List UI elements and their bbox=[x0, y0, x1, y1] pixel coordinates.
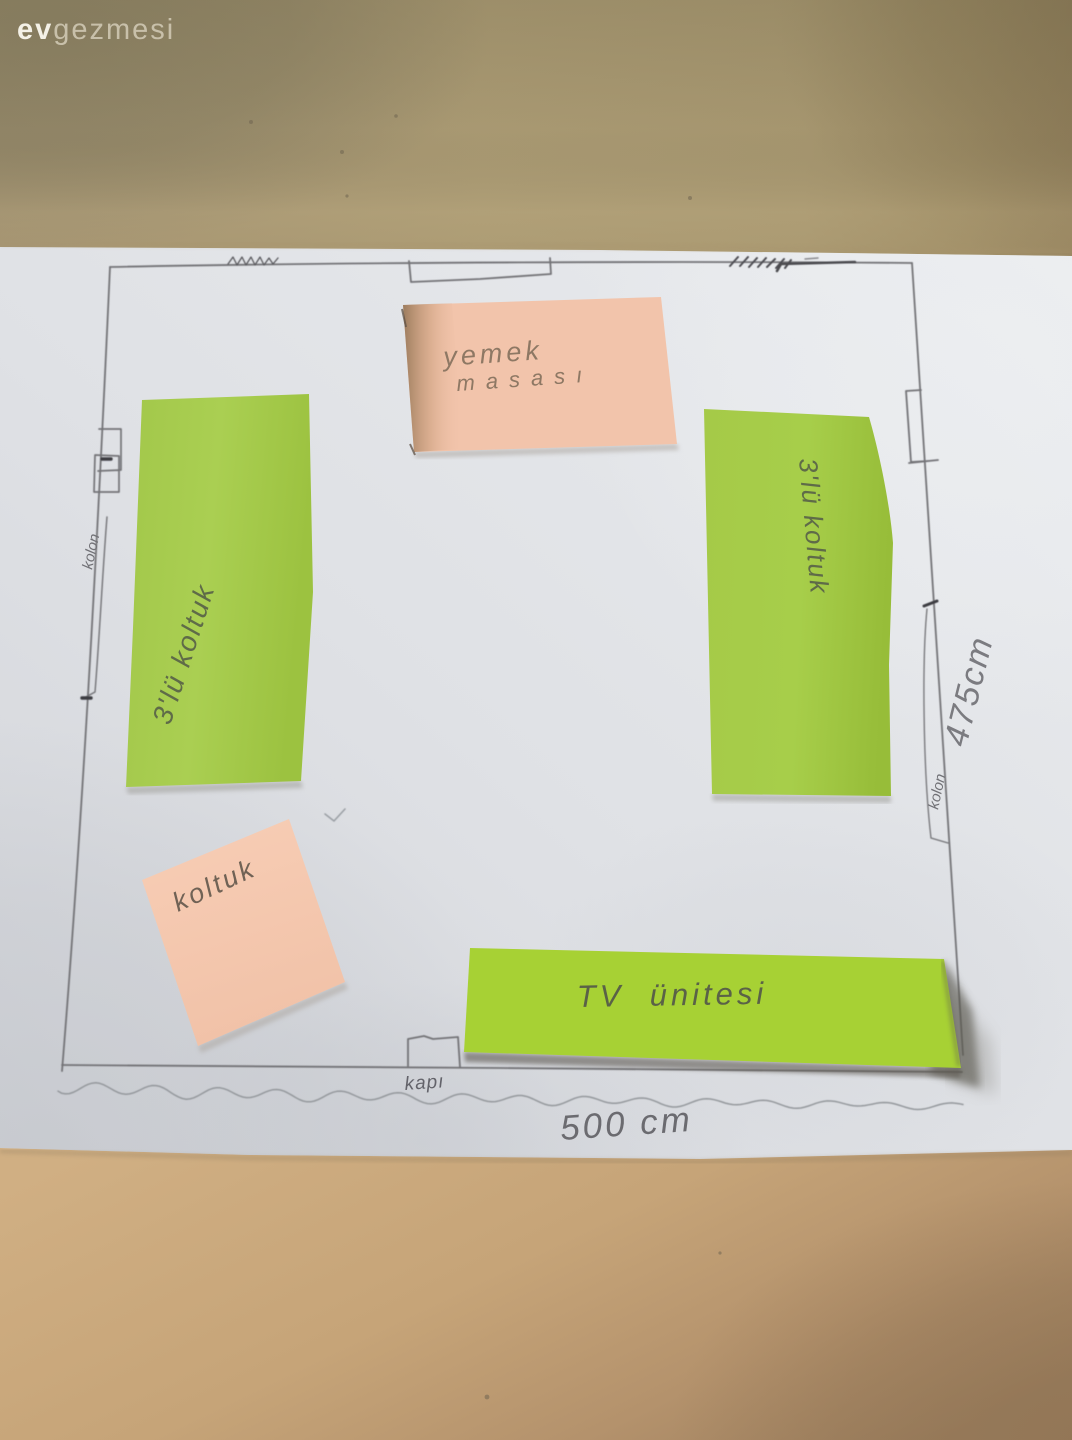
svg-text:TV ünitesi: TV ünitesi bbox=[577, 976, 768, 1014]
svg-text:evgezmesi: evgezmesi bbox=[17, 14, 175, 46]
svg-text:kapı: kapı bbox=[404, 1071, 445, 1095]
